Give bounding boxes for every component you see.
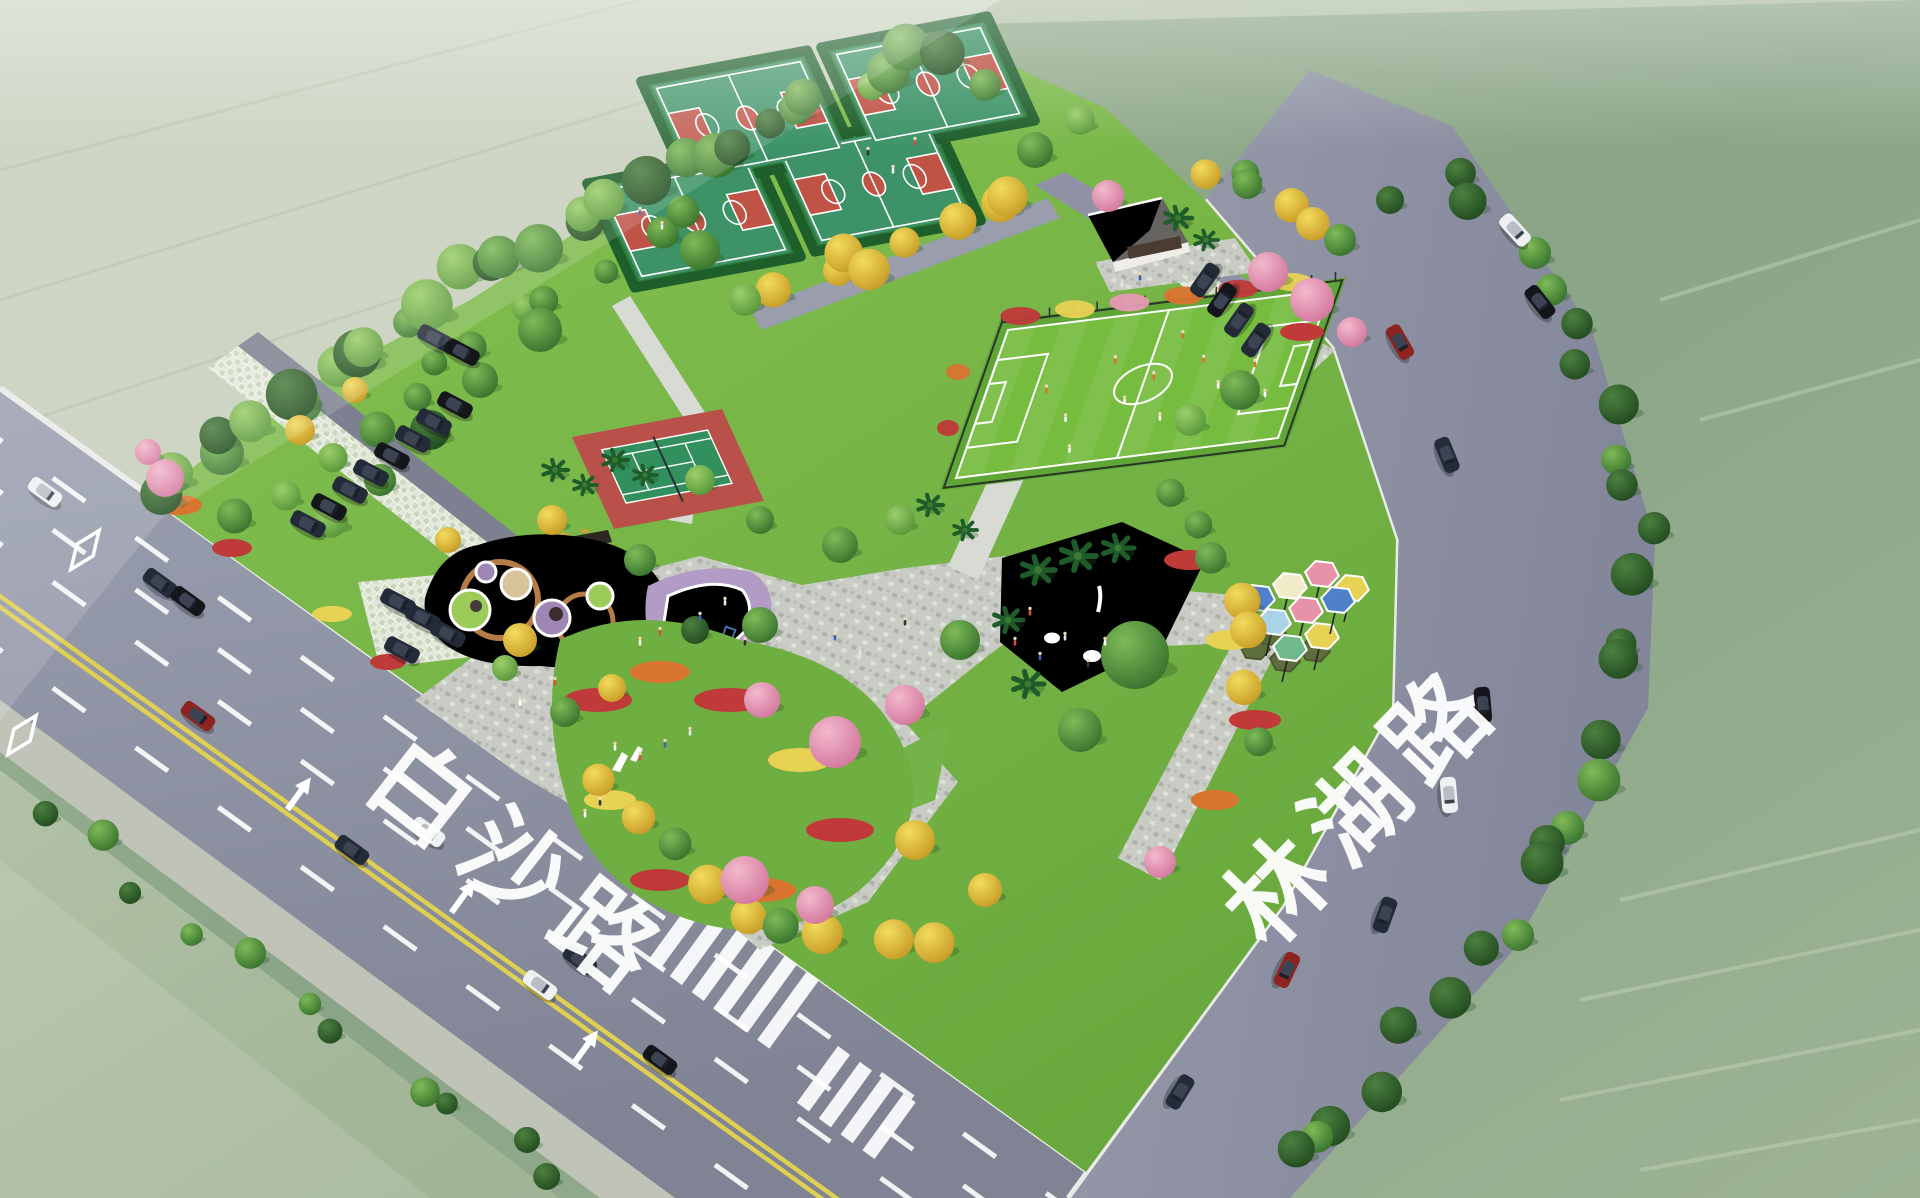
- person-icon: [638, 637, 641, 646]
- figure-sculpture: [1098, 586, 1100, 612]
- flower-shrub-icon: [1000, 307, 1040, 325]
- person-icon: [1013, 637, 1016, 646]
- person-icon: [698, 612, 701, 621]
- play-circle: [587, 583, 613, 609]
- person-icon: [743, 637, 746, 646]
- person-icon: [658, 627, 661, 636]
- person-icon: [638, 752, 641, 761]
- person-icon: [1028, 607, 1031, 616]
- flower-shrub-icon: [1109, 293, 1149, 311]
- person-icon: [1120, 279, 1123, 288]
- person-icon: [891, 165, 894, 174]
- flower-shrub-icon: [937, 420, 959, 436]
- person-icon: [1086, 659, 1089, 668]
- play-circle: [476, 562, 496, 582]
- flower-shrub-icon: [212, 539, 252, 557]
- person-icon: [598, 797, 601, 806]
- flower-shrub-icon: [1055, 300, 1095, 318]
- person-icon: [613, 742, 616, 751]
- flower-shrub-icon: [312, 606, 352, 622]
- person-icon: [1064, 413, 1067, 422]
- flower-shrub-icon: [1229, 710, 1281, 730]
- person-icon: [903, 617, 906, 626]
- flower-shrub-icon: [1191, 790, 1239, 810]
- play-circle: [450, 590, 490, 630]
- person-icon: [663, 739, 666, 748]
- play-dome: [549, 607, 563, 621]
- egg-sculpture: [1083, 650, 1101, 662]
- play-circle: [501, 569, 531, 599]
- person-icon: [833, 632, 836, 641]
- site-plan-rendering: 白沙路 林湖路: [0, 0, 1920, 1198]
- person-icon: [688, 727, 691, 736]
- scene-canvas: 白沙路 林湖路: [0, 0, 1920, 1198]
- flower-shrub-icon: [806, 818, 874, 842]
- person-icon: [1138, 272, 1141, 281]
- egg-sculpture: [1044, 633, 1060, 644]
- person-icon: [1063, 632, 1066, 641]
- person-icon: [1152, 371, 1155, 380]
- person-icon: [1202, 354, 1205, 363]
- person-icon: [1068, 444, 1071, 453]
- person-icon: [1123, 395, 1126, 404]
- person-icon: [583, 809, 586, 818]
- person-icon: [723, 597, 726, 606]
- flower-shrub-icon: [1280, 323, 1324, 341]
- flower-shrub-icon: [630, 661, 690, 683]
- person-icon: [1158, 412, 1161, 421]
- person-icon: [1045, 384, 1048, 393]
- person-icon: [660, 221, 663, 230]
- person-icon: [518, 697, 521, 706]
- person-icon: [553, 677, 556, 686]
- person-icon: [858, 647, 861, 656]
- person-icon: [1103, 637, 1106, 646]
- flower-shrub-icon: [946, 364, 970, 380]
- person-icon: [1114, 355, 1117, 364]
- person-icon: [1181, 330, 1184, 339]
- person-icon: [1038, 652, 1041, 661]
- play-dome: [470, 600, 482, 612]
- person-icon: [1216, 380, 1219, 389]
- person-icon: [1263, 388, 1266, 397]
- person-icon: [1253, 358, 1256, 367]
